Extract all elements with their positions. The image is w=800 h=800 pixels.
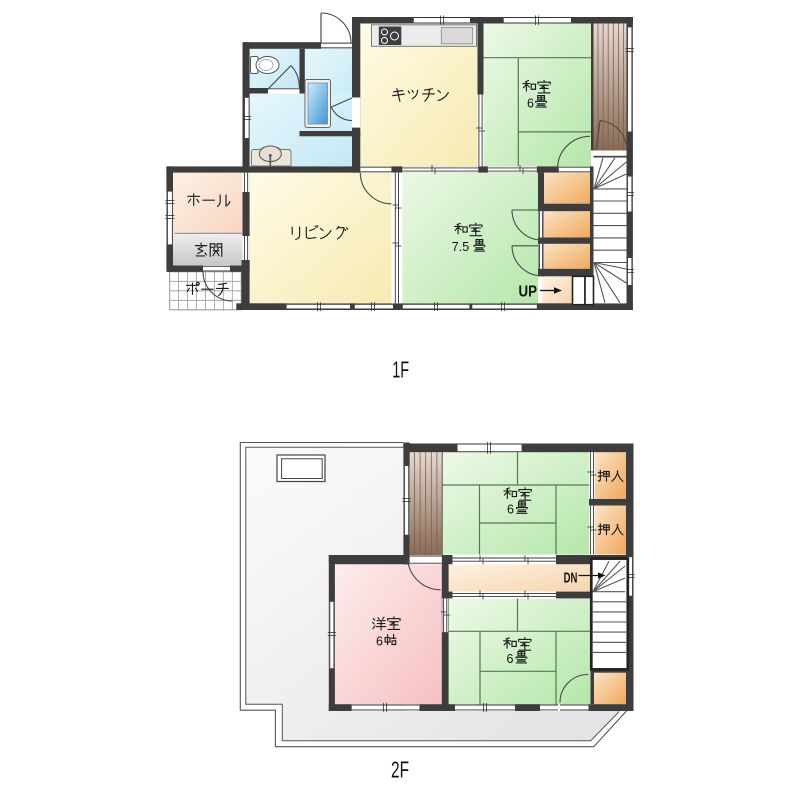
svg-text:6: 6 xyxy=(527,96,534,110)
svg-text:6: 6 xyxy=(507,652,514,666)
svg-text:7.5: 7.5 xyxy=(452,240,469,254)
svg-text:UP: UP xyxy=(519,284,538,301)
svg-text:2F: 2F xyxy=(391,757,409,783)
svg-text:DN: DN xyxy=(564,569,578,586)
svg-text:6: 6 xyxy=(507,503,514,517)
svg-text:1F: 1F xyxy=(392,356,409,382)
svg-text:6: 6 xyxy=(376,635,383,649)
